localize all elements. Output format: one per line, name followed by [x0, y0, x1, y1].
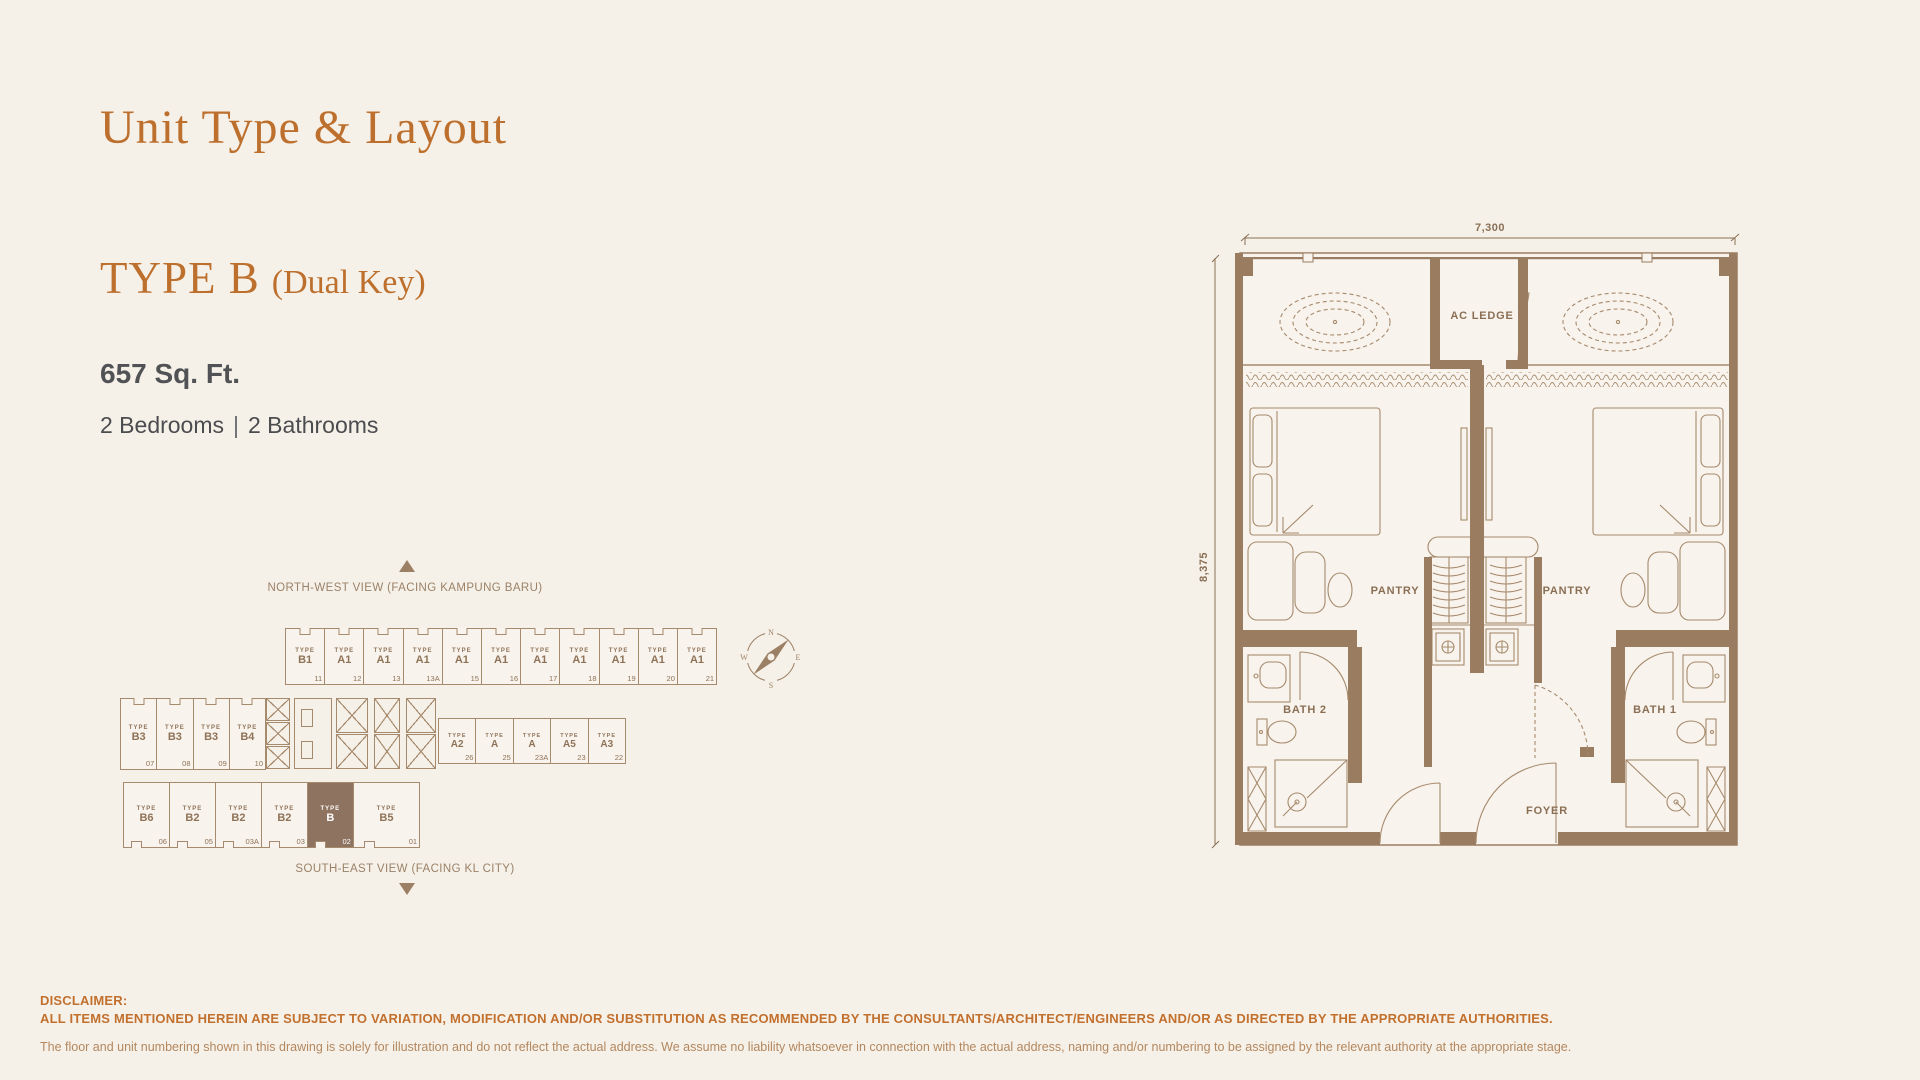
floorplate-unit-b5-01: TYPEB501	[353, 782, 420, 848]
compass-s: S	[769, 681, 773, 690]
floorplate-unit-b6-06: TYPEB606	[123, 782, 170, 848]
floorplate-unit-b3-08: TYPEB308	[156, 698, 193, 770]
compass-icon: N E S W	[736, 622, 806, 692]
core-shaft-icon	[266, 722, 290, 745]
core-shaft-icon	[266, 746, 290, 769]
unit-area: 657 Sq. Ft.	[100, 358, 240, 390]
core-shaft-icon	[374, 698, 400, 733]
floorplate-unit-b2-03: TYPEB203	[261, 782, 308, 848]
floorplate-diagram: NORTH-WEST VIEW (FACING KAMPUNG BARU) TY…	[98, 552, 858, 947]
disclaimer: DISCLAIMER: ALL ITEMS MENTIONED HEREIN A…	[40, 992, 1680, 1054]
compass-w: W	[740, 653, 748, 662]
floorplate-unit-a1-18: TYPEA118	[559, 628, 599, 685]
floorplate-unit-b2-05: TYPEB205	[169, 782, 216, 848]
unit-floorplan: 7,300 8,375 AC LEDGE PANTRY PANTRY BATH …	[1190, 215, 1750, 860]
floorplate-unit-a-23a: TYPEA23A	[513, 718, 551, 764]
window-wave-right	[1486, 372, 1728, 387]
width-dimension: 7,300	[1475, 222, 1505, 234]
compass-needle-icon	[750, 636, 792, 678]
specs-divider: |	[233, 412, 239, 438]
floorplate-unit-b2-03a: TYPEB203A	[215, 782, 262, 848]
floorplate-unit-a1-15: TYPEA115	[442, 628, 482, 685]
floorplate-unit-b1-11: TYPEB111	[285, 628, 325, 685]
floorplate-unit-a2-26: TYPEA226	[438, 718, 476, 764]
floorplate-unit-b-02: TYPEB02	[307, 782, 354, 848]
floorplate-unit-b3-09: TYPEB309	[193, 698, 230, 770]
disclaimer-line2: The floor and unit numbering shown in th…	[40, 1040, 1680, 1054]
south-east-view-label: SOUTH-EAST VIEW (FACING KL CITY)	[155, 863, 655, 875]
north-west-view-label: NORTH-WEST VIEW (FACING KAMPUNG BARU)	[155, 582, 655, 594]
floorplate-unit-a1-20: TYPEA120	[638, 628, 678, 685]
page-title: Unit Type & Layout	[100, 100, 507, 155]
north-west-arrow-icon	[399, 560, 415, 572]
unit-specs: 2 Bedrooms|2 Bathrooms	[100, 412, 378, 439]
bath-2-label: BATH 2	[1283, 704, 1327, 716]
compass-n: N	[768, 628, 774, 637]
ac-ledge-label: AC LEDGE	[1450, 310, 1513, 322]
floorplate-unit-a1-13: TYPEA113	[363, 628, 403, 685]
floorplate-unit-a1-21: TYPEA121	[677, 628, 717, 685]
floorplate-unit-a1-12: TYPEA112	[324, 628, 364, 685]
core-area	[266, 698, 438, 770]
core-shaft-icon	[266, 698, 290, 721]
compass-e: E	[796, 653, 801, 662]
unit-type-name: TYPE B	[100, 253, 260, 303]
floor-area	[1240, 253, 1737, 845]
bathrooms-count: 2 Bathrooms	[248, 412, 378, 438]
bedrooms-count: 2 Bedrooms	[100, 412, 224, 438]
floorplate-row-middle-right: TYPEA226TYPEA25TYPEA23ATYPEA523TYPEA322	[438, 718, 626, 764]
floorplate-unit-a5-23: TYPEA523	[550, 718, 588, 764]
unit-type-qualifier: (Dual Key)	[272, 264, 426, 301]
floorplate-unit-b3-07: TYPEB307	[120, 698, 157, 770]
south-east-arrow-icon	[399, 883, 415, 895]
floorplate-row-middle-left: TYPEB307TYPEB308TYPEB309TYPEB410	[120, 698, 266, 770]
core-lift	[301, 709, 313, 727]
floorplate-row-bottom: TYPEB606TYPEB205TYPEB203ATYPEB203TYPEB02…	[123, 782, 420, 848]
disclaimer-line1: ALL ITEMS MENTIONED HEREIN ARE SUBJECT T…	[40, 1010, 1680, 1028]
core-shaft-icon	[406, 698, 436, 733]
floorplate-unit-a-25: TYPEA25	[475, 718, 513, 764]
core-shaft-icon	[336, 698, 368, 733]
floorplate-row-top: TYPEB111TYPEA112TYPEA113TYPEA113ATYPEA11…	[285, 628, 717, 685]
pantry-right-label: PANTRY	[1543, 585, 1592, 597]
core-lobby	[294, 698, 332, 769]
floorplate-unit-a1-19: TYPEA119	[599, 628, 639, 685]
core-lift	[301, 741, 313, 759]
floorplate-unit-b4-10: TYPEB410	[229, 698, 266, 770]
core-shaft-icon	[374, 734, 400, 769]
floorplate-unit-a1-13a: TYPEA113A	[403, 628, 443, 685]
floorplate-unit-a3-22: TYPEA322	[588, 718, 626, 764]
core-shaft-icon	[336, 734, 368, 769]
pantry-left-label: PANTRY	[1371, 585, 1420, 597]
floorplate-unit-a1-17: TYPEA117	[520, 628, 560, 685]
disclaimer-heading: DISCLAIMER:	[40, 992, 1680, 1010]
unit-heading: TYPE B(Dual Key)	[100, 252, 426, 304]
core-shaft-icon	[406, 734, 436, 769]
foyer-label: FOYER	[1526, 805, 1568, 817]
window-wave-left	[1246, 372, 1468, 387]
floorplate-unit-a1-16: TYPEA116	[481, 628, 521, 685]
height-dimension: 8,375	[1198, 552, 1210, 582]
bath-1-label: BATH 1	[1633, 704, 1677, 716]
floorplan-drawing: 7,300 8,375 AC LEDGE PANTRY PANTRY BATH …	[1190, 215, 1750, 860]
